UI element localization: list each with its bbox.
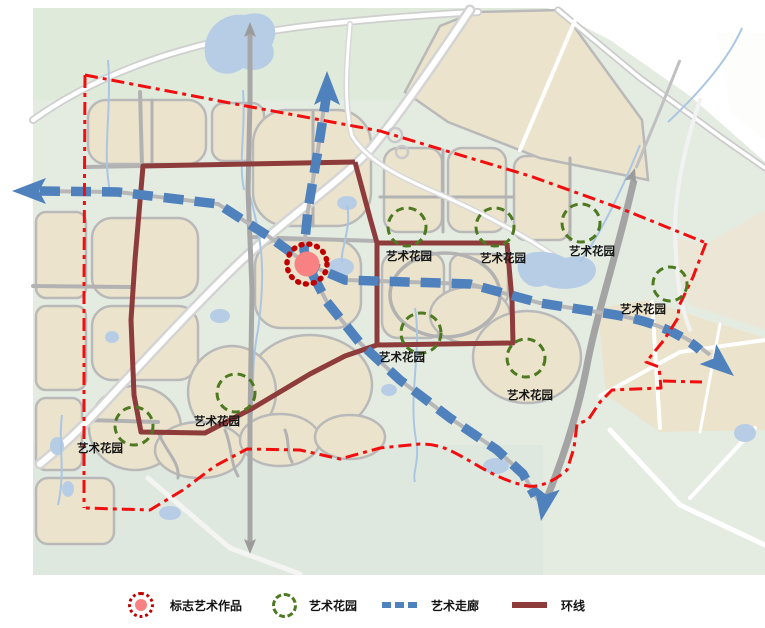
screenshot-root: 艺术花园艺术花园艺术花园艺术花园艺术花园艺术花园艺术花园艺术花园 标志艺术作品 … <box>0 0 765 628</box>
garden-label: 艺术花园 <box>507 388 553 402</box>
legend-label-ring: 环线 <box>561 597 585 614</box>
garden-label: 艺术花园 <box>569 244 615 258</box>
landmark-symbol-icon <box>128 592 154 618</box>
legend-item-garden: 艺术花园 <box>272 590 357 620</box>
garden-label: 艺术花园 <box>386 249 432 263</box>
legend-label-garden: 艺术花园 <box>309 597 357 614</box>
garden-symbol-icon <box>272 593 297 618</box>
garden-label: 艺术花园 <box>194 414 240 428</box>
garden-label: 艺术花园 <box>620 302 666 316</box>
corridor-symbol-icon <box>382 602 417 608</box>
ring-symbol-icon <box>512 602 547 608</box>
legend-label-corridor: 艺术走廊 <box>431 597 479 614</box>
garden-label: 艺术花园 <box>379 350 425 364</box>
legend-label-landmark: 标志艺术作品 <box>170 597 242 614</box>
planning-map: 艺术花园艺术花园艺术花园艺术花园艺术花园艺术花园艺术花园艺术花园 <box>0 0 765 575</box>
legend-item-ring: 环线 <box>512 590 585 620</box>
legend-item-landmark: 标志艺术作品 <box>128 590 242 620</box>
garden-label: 艺术花园 <box>480 251 526 265</box>
legend-item-corridor: 艺术走廊 <box>382 590 479 620</box>
garden-label: 艺术花园 <box>77 441 123 455</box>
